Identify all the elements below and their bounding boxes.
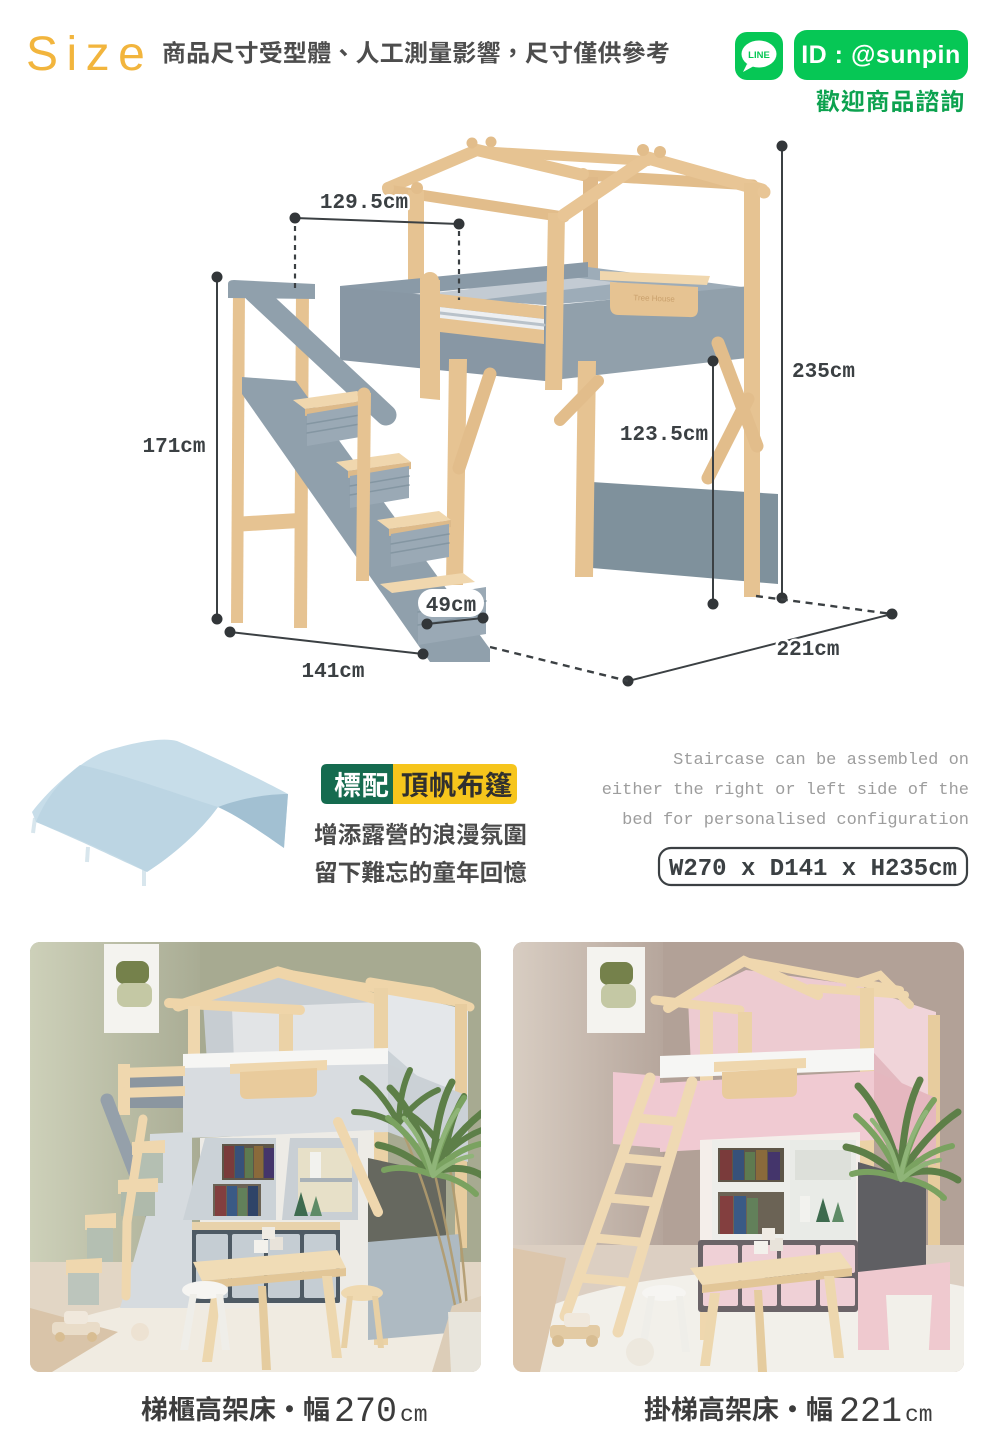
svg-text:123.5cm: 123.5cm: [620, 424, 708, 447]
svg-text:141cm: 141cm: [301, 661, 364, 684]
svg-text:bed for personalised configura: bed for personalised configuration: [622, 811, 969, 830]
svg-text:ID : @sunpin: ID : @sunpin: [801, 41, 961, 69]
svg-text:49cm: 49cm: [426, 595, 476, 618]
svg-text:270: 270: [334, 1392, 397, 1432]
svg-text:LINE: LINE: [748, 50, 770, 61]
svg-text:235cm: 235cm: [792, 361, 855, 384]
svg-text:Tree House: Tree House: [633, 293, 675, 303]
svg-text:either the right or left side: either the right or left side of the: [602, 781, 969, 800]
svg-text:Size: Size: [26, 28, 153, 81]
svg-text:cm: cm: [400, 1402, 428, 1428]
svg-text:221: 221: [839, 1392, 902, 1432]
svg-text:129.5cm: 129.5cm: [320, 192, 408, 215]
svg-text:W270 x D141 x H235cm: W270 x D141 x H235cm: [669, 856, 957, 883]
svg-text:171cm: 171cm: [142, 436, 205, 459]
svg-text:Staircase can be assembled on: Staircase can be assembled on: [673, 751, 969, 770]
svg-text:cm: cm: [905, 1402, 933, 1428]
svg-text:221cm: 221cm: [776, 639, 839, 662]
